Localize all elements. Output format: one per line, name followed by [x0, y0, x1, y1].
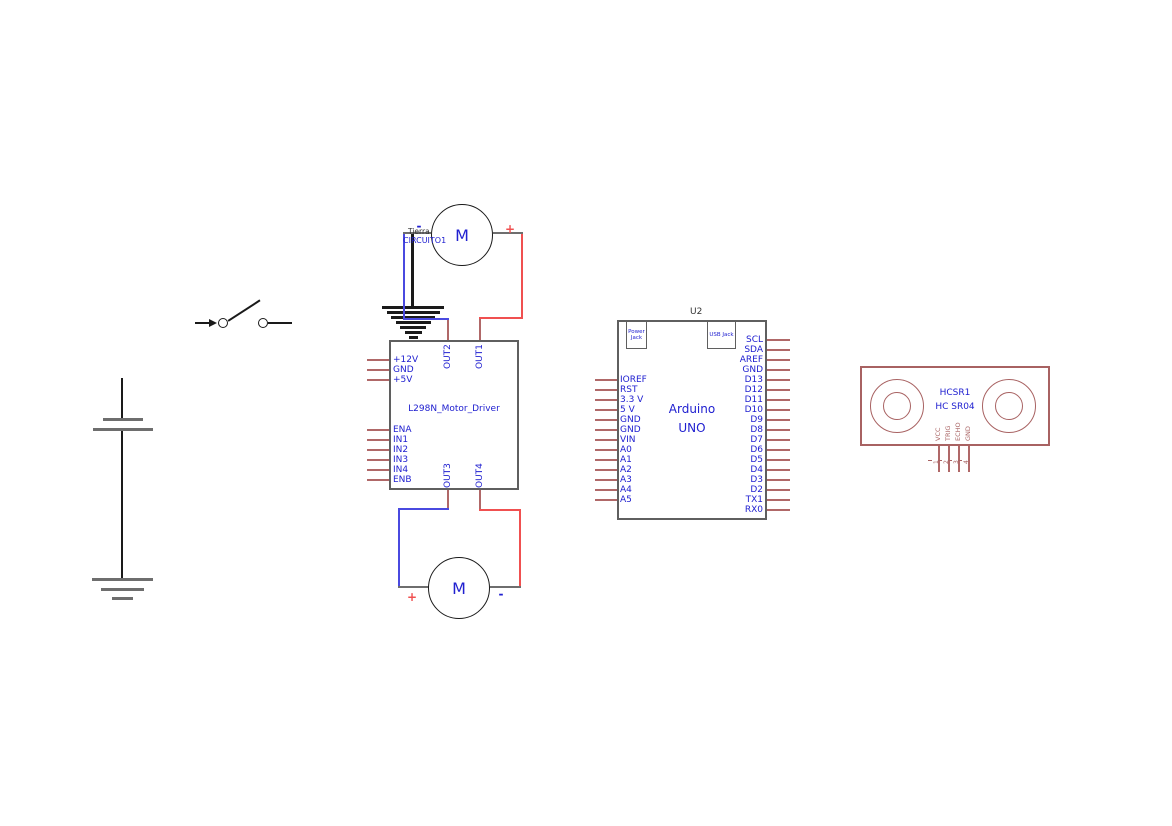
schematic-canvas: M - + Tierra CIRCUITO1 L298N_Motor_Drive…	[0, 0, 1172, 826]
arduino-pin-a2[interactable]	[595, 469, 617, 471]
arduino-pin-a5[interactable]	[595, 499, 617, 501]
hcsr04-reference: HCSR1	[905, 388, 1005, 398]
l298n-pin-label-+5v: +5V	[393, 375, 412, 385]
arduino-pin-label: D7	[750, 435, 763, 445]
hcsr04-pin-number-4: 4	[963, 460, 970, 464]
arduino-pin-label: D6	[750, 445, 763, 455]
motor1-label: M	[455, 226, 469, 245]
switch-arrow-icon	[209, 319, 217, 327]
arduino-pin-label: D8	[750, 425, 763, 435]
arduino-pin-label: 5 V	[620, 405, 635, 415]
motor1-blue-wire-horizontal[interactable]	[403, 318, 449, 320]
arduino-pin-label: A3	[620, 475, 632, 485]
arduino-pin-label: D5	[750, 455, 763, 465]
arduino-pin-rst[interactable]	[595, 389, 617, 391]
arduino-pin-label: GND	[620, 425, 641, 435]
motor2-blue-wire-horizontal[interactable]	[398, 508, 449, 510]
arduino-pin-a3[interactable]	[595, 479, 617, 481]
motor1-body[interactable]: M	[431, 204, 493, 266]
arduino-pin-label: SDA	[744, 345, 763, 355]
arduino-pin-d2[interactable]	[767, 489, 790, 491]
arduino-pin-label: A4	[620, 485, 632, 495]
arduino-pin-a4[interactable]	[595, 489, 617, 491]
motor1-plus-sign: +	[505, 223, 515, 235]
l298n-pin-label-gnd: GND	[393, 365, 414, 375]
l298n-pin-in1[interactable]	[367, 439, 389, 441]
l298n-pin-label-in1: IN1	[393, 435, 408, 445]
arduino-pin-d12[interactable]	[767, 389, 790, 391]
hcsr04-pin-label-trig: TRIG	[945, 426, 952, 441]
hcsr04-pin-trig[interactable]	[948, 446, 950, 472]
arduino-pin-gnd[interactable]	[767, 369, 790, 371]
arduino-pin-d13[interactable]	[767, 379, 790, 381]
motor2-blue-wire-vertical[interactable]	[398, 508, 400, 588]
hcsr04-pin-number-tick	[928, 460, 932, 461]
arduino-pin-d4[interactable]	[767, 469, 790, 471]
arduino-pin-3.3v[interactable]	[595, 399, 617, 401]
l298n-pin-label-ena: ENA	[393, 425, 412, 435]
l298n-out1-pin[interactable]	[479, 319, 481, 340]
l298n-out4-pin[interactable]	[479, 490, 481, 510]
earth-bar-5	[400, 326, 426, 329]
motor1-blue-wire-vertical[interactable]	[403, 232, 405, 320]
arduino-pin-aref[interactable]	[767, 359, 790, 361]
l298n-pin-+5v[interactable]	[367, 379, 389, 381]
l298n-out3-pin[interactable]	[447, 490, 449, 509]
switch-right-wire[interactable]	[268, 322, 292, 324]
arduino-pin-label: D12	[745, 385, 763, 395]
motor2-left-terminal-wire[interactable]	[398, 586, 429, 588]
ground-bar-3	[112, 597, 133, 600]
arduino-pin-a0[interactable]	[595, 449, 617, 451]
l298n-pin-in3[interactable]	[367, 459, 389, 461]
arduino-power-jack[interactable]: Power Jack	[626, 321, 647, 349]
l298n-pin-enb[interactable]	[367, 479, 389, 481]
arduino-pin-gnd[interactable]	[595, 429, 617, 431]
motor1-red-wire-horizontal[interactable]	[479, 317, 523, 319]
arduino-pin-d10[interactable]	[767, 409, 790, 411]
hcsr04-pin-number-tick	[948, 460, 952, 461]
arduino-pin-label: D4	[750, 465, 763, 475]
arduino-pin-label: RST	[620, 385, 637, 395]
motor2-right-terminal-wire[interactable]	[490, 586, 521, 588]
arduino-pin-d6[interactable]	[767, 449, 790, 451]
earth-bar-6	[405, 331, 422, 334]
arduino-pin-label: A0	[620, 445, 632, 455]
arduino-pin-d8[interactable]	[767, 429, 790, 431]
l298n-pin-in2[interactable]	[367, 449, 389, 451]
switch-throw-terminal[interactable]	[258, 318, 268, 328]
motor2-label: M	[452, 579, 466, 598]
motor2-red-wire-vertical[interactable]	[519, 509, 521, 588]
l298n-pin-in4[interactable]	[367, 469, 389, 471]
l298n-pin-label-out3: OUT3	[443, 463, 453, 488]
arduino-pin-d5[interactable]	[767, 459, 790, 461]
l298n-pin-+12v[interactable]	[367, 359, 389, 361]
arduino-pin-label: IOREF	[620, 375, 647, 385]
hcsr04-pin-gnd[interactable]	[968, 446, 970, 472]
arduino-pin-vin[interactable]	[595, 439, 617, 441]
hcsr04-pin-label-echo: ECHO	[955, 422, 962, 441]
earth-bar-4	[396, 321, 431, 324]
arduino-pin-label: D10	[745, 405, 763, 415]
hcsr04-name: HC SR04	[905, 402, 1005, 412]
arduino-pin-label: A2	[620, 465, 632, 475]
l298n-pin-ena[interactable]	[367, 429, 389, 431]
l298n-out2-pin[interactable]	[447, 320, 449, 340]
net-label-circuito1: CIRCUITO1	[403, 236, 446, 245]
arduino-pin-label: D3	[750, 475, 763, 485]
net-label-tierra: Tierra	[408, 227, 430, 236]
arduino-usb-jack[interactable]: USB Jack	[707, 321, 736, 349]
arduino-pin-d9[interactable]	[767, 419, 790, 421]
arduino-pin-label: D13	[745, 375, 763, 385]
arduino-reference: U2	[690, 307, 702, 317]
battery-bottom-wire[interactable]	[121, 431, 123, 579]
arduino-pin-5v[interactable]	[595, 409, 617, 411]
arduino-pin-gnd[interactable]	[595, 419, 617, 421]
l298n-pin-label-in3: IN3	[393, 455, 408, 465]
ground-bar-2	[101, 588, 144, 591]
arduino-pin-label: SCL	[746, 335, 763, 345]
arduino-pin-label: D11	[745, 395, 763, 405]
arduino-pin-label: D9	[750, 415, 763, 425]
arduino-pin-label: A5	[620, 495, 632, 505]
earth-bar-7	[409, 336, 418, 339]
l298n-title: L298N_Motor_Driver	[389, 404, 519, 414]
arduino-pin-label: VIN	[620, 435, 636, 445]
battery-plate-long[interactable]	[93, 428, 153, 431]
l298n-pin-gnd[interactable]	[367, 369, 389, 371]
motor2-minus-sign: -	[499, 588, 504, 600]
arduino-pin-ioref[interactable]	[595, 379, 617, 381]
arduino-pin-label: GND	[620, 415, 641, 425]
arduino-pin-label: GND	[742, 365, 763, 375]
switch-lever[interactable]	[228, 299, 261, 321]
l298n-pin-label-out2: OUT2	[443, 344, 453, 369]
arduino-pin-a1[interactable]	[595, 459, 617, 461]
hcsr04-pin-number-tick	[958, 460, 962, 461]
arduino-pin-label: TX1	[746, 495, 763, 505]
l298n-pin-label-out1: OUT1	[475, 344, 485, 369]
battery-plate-short[interactable]	[103, 418, 143, 421]
arduino-pin-sda[interactable]	[767, 349, 790, 351]
l298n-pin-label-enb: ENB	[393, 475, 412, 485]
motor2-plus-sign: +	[407, 591, 417, 603]
arduino-pin-label: RX0	[745, 505, 763, 515]
arduino-pin-scl[interactable]	[767, 339, 790, 341]
motor2-red-wire-horizontal[interactable]	[479, 509, 521, 511]
arduino-pin-tx1[interactable]	[767, 499, 790, 501]
arduino-pin-d11[interactable]	[767, 399, 790, 401]
motor1-red-wire-vertical[interactable]	[521, 232, 523, 319]
motor2-body[interactable]: M	[428, 557, 490, 619]
hcsr04-pin-number-tick	[938, 460, 942, 461]
l298n-pin-label-out4: OUT4	[475, 463, 485, 488]
hcsr04-pin-vcc[interactable]	[938, 446, 940, 472]
earth-bar-2	[387, 311, 440, 314]
l298n-pin-label-in4: IN4	[393, 465, 408, 475]
hcsr04-pin-label-vcc: VCC	[935, 427, 942, 441]
hcsr04-pin-echo[interactable]	[958, 446, 960, 472]
arduino-pin-label: 3.3 V	[620, 395, 643, 405]
arduino-pin-label: A1	[620, 455, 632, 465]
arduino-pin-rx0[interactable]	[767, 509, 790, 511]
arduino-pin-label: AREF	[740, 355, 763, 365]
arduino-pin-label: D2	[750, 485, 763, 495]
battery-top-wire[interactable]	[121, 378, 123, 419]
hcsr04-pin-label-gnd: GND	[965, 426, 972, 441]
arduino-pin-d7[interactable]	[767, 439, 790, 441]
l298n-pin-label-in2: IN2	[393, 445, 408, 455]
ground-bar-1	[92, 578, 153, 581]
l298n-pin-label-+12v: +12V	[393, 355, 418, 365]
arduino-pin-d3[interactable]	[767, 479, 790, 481]
